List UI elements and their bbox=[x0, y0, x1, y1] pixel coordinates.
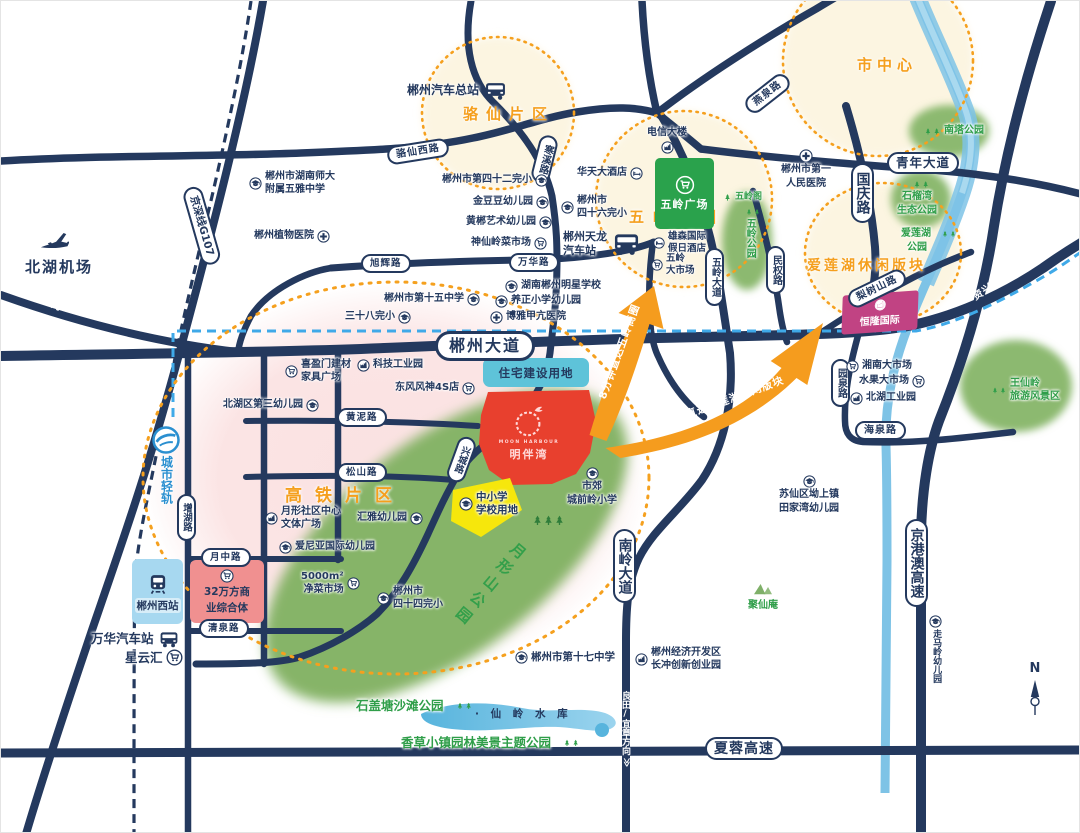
hospital-cross-icon bbox=[799, 149, 813, 163]
no17-label: 郴州市第十七中学 bbox=[531, 651, 615, 664]
poi-no42-school: 郴州市第四十二完小 bbox=[442, 174, 548, 187]
school-icon bbox=[586, 467, 599, 480]
poi-central-bus-station: 郴州汽车总站 bbox=[407, 77, 509, 104]
poi-wulingge: 五岭阁 bbox=[723, 192, 762, 203]
tech-park-label: 科技工业园 bbox=[373, 359, 423, 372]
ailianhu-line2: 公园 bbox=[907, 242, 927, 255]
poi-xiangcao-park: 香草小镇园林美景主题公园 bbox=[401, 735, 580, 751]
poi-fruit-market: 水果大市场 bbox=[859, 375, 925, 388]
commercial-complex-line1: 32万方商 bbox=[204, 584, 250, 599]
mingxing-label: 湖南郴州明星学校 bbox=[521, 280, 601, 293]
poi-beihu-industrial: 北湖工业园 bbox=[850, 392, 916, 405]
mountain-icon bbox=[745, 575, 781, 599]
cart-icon bbox=[285, 365, 298, 378]
factory-icon bbox=[357, 359, 370, 372]
wreath-bird-icon bbox=[510, 405, 548, 439]
factory-icon bbox=[635, 653, 648, 666]
road-label-jinggangao: 京港澳高速 bbox=[905, 519, 928, 607]
suxian-line1: 苏仙区坳上镇 bbox=[779, 489, 839, 502]
light-rail-icon bbox=[151, 425, 181, 455]
trees-icon bbox=[447, 700, 473, 712]
school-icon bbox=[539, 216, 552, 229]
reservoir-drop bbox=[595, 723, 609, 737]
factory-icon bbox=[850, 392, 863, 405]
zoumaling-label: 走马岭幼儿园 bbox=[930, 629, 941, 693]
tianlong-line2: 汽车站 bbox=[563, 244, 607, 258]
poi-no1-hospital: 郴州市第一 人民医院 bbox=[781, 149, 831, 190]
poi-no46-school: 郴州市四十六完小 bbox=[561, 195, 627, 220]
xiongsen-line1: 雄森国际 bbox=[668, 231, 706, 243]
poi-nanta-park: 南塔公园 bbox=[915, 125, 984, 138]
poi-huangchen-art: 黄郴艺术幼儿园 bbox=[466, 216, 552, 229]
yangzheng-label: 养正小学幼儿园 bbox=[511, 295, 581, 308]
beihu-no3-label: 北湖区第三幼儿园 bbox=[223, 399, 303, 412]
jiecai-line1: 5000m² bbox=[301, 571, 344, 584]
poi-reservoir: · 仙 岭 水 库 bbox=[475, 708, 572, 721]
cart-icon bbox=[534, 237, 547, 250]
cart-icon bbox=[651, 259, 663, 271]
poi-no38-school: 三十八完小 bbox=[345, 311, 411, 324]
school-icon bbox=[803, 475, 816, 488]
wuling-plaza-label: 五岭广场 bbox=[661, 196, 709, 212]
trees-icon bbox=[904, 179, 930, 190]
beihu-industrial-label: 北湖工业园 bbox=[866, 392, 916, 405]
xiyingmen-line2: 家具广场 bbox=[301, 372, 351, 385]
commercial-complex-block: 32万方商 业综合体 bbox=[190, 560, 264, 623]
poi-xiyingmen: 喜盈门建材家具广场 bbox=[285, 359, 351, 384]
project-name: 明伴湾 bbox=[510, 446, 549, 462]
fruit-market-label: 水果大市场 bbox=[859, 375, 909, 388]
zone-label-luoxian: 骆仙片区 bbox=[463, 103, 555, 124]
trees-icon bbox=[933, 229, 957, 239]
school-land-line1: 中小学 bbox=[476, 491, 518, 504]
location-map: 骆仙片区 五岭商圈 市中心 爱莲湖休闲版块 高铁片区 五岭广场 住宅建设用地 恒… bbox=[0, 0, 1080, 833]
plane-icon bbox=[25, 227, 83, 257]
chengqianling-line2: 城前岭小学 bbox=[567, 495, 617, 508]
no15-label: 郴州市第十五中学 bbox=[384, 293, 464, 306]
poi-school-land: 中小学学校用地 bbox=[459, 491, 518, 517]
direction-liangtian-yizhang: 良田/宜章方向 bbox=[619, 691, 632, 755]
wuling-market-line2: 大市场 bbox=[666, 265, 695, 277]
school-icon bbox=[398, 311, 411, 324]
compass-needle-icon bbox=[1027, 678, 1043, 718]
compass-north-label: N bbox=[1030, 661, 1041, 677]
shenxianling-label: 神仙岭菜市场 bbox=[471, 237, 531, 250]
poi-shigaitang-park: 石盖塘沙滩公园 bbox=[356, 698, 473, 714]
trees-icon bbox=[983, 385, 1007, 396]
juxian-label: 聚仙庵 bbox=[748, 600, 778, 613]
road-label-wanhua: 万华路 bbox=[509, 253, 559, 272]
no46-line2: 四十六完小 bbox=[577, 208, 627, 221]
bus-icon bbox=[610, 227, 643, 260]
school-icon bbox=[410, 512, 423, 525]
school-icon bbox=[459, 497, 473, 511]
wuling-park-label: 五岭公园 bbox=[743, 218, 756, 270]
road-label-yuezhong: 月中路 bbox=[201, 548, 251, 567]
poi-airport: 北湖机场 bbox=[25, 227, 93, 277]
school-icon bbox=[495, 295, 508, 308]
commercial-complex-line2: 业综合体 bbox=[206, 600, 248, 615]
botanical-label: 郴州植物医院 bbox=[254, 230, 314, 243]
road-label-chenzhou-avenue: 郴州大道 bbox=[435, 331, 535, 361]
poi-shenxianling-market: 神仙岭菜市场 bbox=[471, 237, 547, 250]
cart-icon bbox=[166, 649, 183, 666]
tree-icon bbox=[723, 193, 732, 202]
poi-light-rail: 城市轻轨 bbox=[151, 425, 181, 514]
school-icon bbox=[279, 541, 292, 554]
no44-line1: 郴州市 bbox=[393, 586, 443, 599]
wanhua-bus-label: 万华汽车站 bbox=[91, 631, 154, 647]
poi-huiya-kindergarten: 汇雅幼儿园 bbox=[357, 512, 423, 525]
trees-icon bbox=[737, 207, 761, 217]
poi-econ-zone: 郴州经济开发区长冲创新创业园 bbox=[635, 647, 721, 672]
poi-ailianhu-park: 爱莲湖 公园 bbox=[901, 228, 957, 254]
school-icon bbox=[536, 196, 549, 209]
residential-land-block: 住宅建设用地 bbox=[483, 358, 589, 387]
compass: N bbox=[1027, 661, 1043, 718]
residential-land-label: 住宅建设用地 bbox=[499, 365, 574, 381]
poi-xingyunhui: 星云汇 bbox=[125, 649, 183, 666]
no42-label: 郴州市第四十二完小 bbox=[442, 174, 532, 187]
project-logo: MOON HARBOUR 明伴湾 bbox=[497, 405, 561, 462]
building-icon bbox=[874, 298, 886, 311]
poi-telecom-tower: 电信大楼 bbox=[647, 127, 687, 154]
bus-icon bbox=[482, 77, 509, 104]
road-label-nanling: 南岭大道 bbox=[613, 529, 636, 603]
poi-mingxing-school: 湖南郴州明星学校 bbox=[505, 280, 601, 293]
school-icon bbox=[505, 280, 518, 293]
direction-down-chevron-icon: ≫ bbox=[621, 758, 631, 768]
zone-label-downtown: 市中心 bbox=[857, 54, 917, 75]
no44-line2: 四十四完小 bbox=[393, 599, 443, 612]
poi-juxian-temple: 聚仙庵 bbox=[745, 575, 781, 613]
poi-huatian-hotel: 华天大酒店 bbox=[577, 167, 643, 180]
shiliuwan-line1: 石榴湾 bbox=[902, 191, 932, 204]
poi-jiecai-market: 5000m²净菜市场 bbox=[301, 571, 360, 596]
shigaitang-label: 石盖塘沙滩公园 bbox=[356, 698, 444, 714]
poi-ainiya-kindergarten: 爱尼亚国际幼儿园 bbox=[279, 541, 375, 554]
wuling-market-line1: 五岭 bbox=[666, 253, 695, 265]
yuexing-center-line2: 文体广场 bbox=[281, 519, 341, 532]
cart-icon bbox=[220, 569, 234, 583]
west-station-label: 郴州西站 bbox=[135, 598, 181, 613]
poi-boya-hospital: 博雅甲亢医院 bbox=[490, 311, 566, 324]
hnsd-line1: 郴州市湖南师大 bbox=[265, 171, 335, 184]
poi-hnsd-school: 郴州市湖南师大附属五雅中学 bbox=[249, 171, 335, 196]
wulingge-label: 五岭阁 bbox=[735, 192, 762, 203]
zone-label-ailian: 爱莲湖休闲版块 bbox=[807, 255, 926, 275]
nanta-label: 南塔公园 bbox=[944, 125, 984, 138]
jiecai-line2: 净菜市场 bbox=[304, 584, 344, 597]
poi-wuling-park: 五岭公园 bbox=[737, 207, 761, 270]
road-label-songshan: 松山路 bbox=[337, 463, 387, 482]
cart-icon bbox=[462, 382, 475, 395]
tianlong-line1: 郴州天龙 bbox=[563, 230, 607, 244]
huangchen-art-label: 黄郴艺术幼儿园 bbox=[466, 216, 536, 229]
cart-icon bbox=[675, 175, 695, 195]
poi-beihu-no3-kindergarten: 北湖区第三幼儿园 bbox=[223, 399, 319, 412]
poi-jindoudou: 金豆豆幼儿园 bbox=[473, 196, 549, 209]
poi-xiongsen-hotel: 雄森国际假日酒店 bbox=[653, 231, 706, 255]
school-icon bbox=[561, 201, 574, 214]
chengqianling-line1: 市郊 bbox=[582, 481, 602, 494]
school-icon bbox=[377, 592, 390, 605]
bus-icon bbox=[157, 627, 181, 651]
poi-dongfeng-4s: 东风风神4S店 bbox=[395, 382, 475, 395]
cart-icon bbox=[912, 375, 925, 388]
light-rail-label: 城市轻轨 bbox=[159, 456, 174, 514]
school-icon bbox=[515, 651, 528, 664]
dongfeng-label: 东风风神4S店 bbox=[395, 382, 459, 395]
poi-tianlong-bus-station: 郴州天龙汽车站 bbox=[563, 227, 643, 260]
no1-hospital-line2: 人民医院 bbox=[786, 178, 826, 191]
zone-label-gaotie: 高铁片区 bbox=[285, 481, 405, 506]
poi-no44-school: 郴州市四十四完小 bbox=[377, 586, 443, 611]
hospital-cross-icon bbox=[490, 311, 503, 324]
airport-label: 北湖机场 bbox=[25, 258, 93, 277]
school-icon bbox=[467, 293, 480, 306]
econ-zone-line1: 郴州经济开发区 bbox=[651, 647, 721, 660]
road-label-huangni: 黄泥路 bbox=[337, 408, 387, 427]
hotel-icon bbox=[630, 167, 643, 180]
ailianhu-line1: 爱莲湖 bbox=[901, 228, 931, 241]
road-label-guoqing: 国庆路 bbox=[851, 163, 874, 223]
wuling-plaza-block: 五岭广场 bbox=[655, 158, 714, 229]
reservoir-label: · 仙 岭 水 库 bbox=[475, 708, 572, 721]
xiangnan-label: 湘南大市场 bbox=[862, 360, 912, 373]
xiangcao-label: 香草小镇园林美景主题公园 bbox=[401, 735, 551, 751]
road-label-xuhui: 旭辉路 bbox=[361, 254, 411, 273]
hospital-cross-icon bbox=[317, 230, 330, 243]
road-north-vertical bbox=[642, 1, 657, 113]
shiliuwan-line2: 生态公园 bbox=[897, 205, 937, 218]
ainiya-label: 爱尼亚国际幼儿园 bbox=[295, 541, 375, 554]
poi-botanical-hospital: 郴州植物医院 bbox=[254, 230, 330, 243]
building-icon bbox=[661, 141, 674, 154]
poi-shiliuwan-park: 石榴湾 生态公园 bbox=[897, 179, 937, 217]
school-icon bbox=[929, 615, 942, 628]
poi-zoumaling-kindergarten: 走马岭幼儿园 bbox=[929, 615, 942, 693]
poi-yuexing-center: 月形社区中心文体广场 bbox=[265, 506, 341, 531]
road-label-minquan: 民权路 bbox=[766, 246, 785, 294]
henglong-label: 恒隆国际 bbox=[860, 310, 900, 328]
telecom-label: 电信大楼 bbox=[647, 127, 687, 140]
no1-hospital-line1: 郴州市第一 bbox=[781, 164, 831, 177]
huiya-label: 汇雅幼儿园 bbox=[357, 512, 407, 525]
cart-icon bbox=[846, 360, 859, 373]
project-latin-name: MOON HARBOUR bbox=[499, 440, 560, 445]
suxian-line2: 田家湾幼儿园 bbox=[779, 503, 839, 516]
road-label-xiarong: 夏蓉高速 bbox=[705, 737, 783, 760]
road-label-qingnian: 青年大道 bbox=[887, 152, 959, 174]
huatian-label: 华天大酒店 bbox=[577, 167, 627, 180]
poi-wangxianling: 王仙岭旅游风景区 bbox=[983, 378, 1060, 403]
wangxianling-line2: 旅游风景区 bbox=[1010, 391, 1060, 404]
xiyingmen-line1: 喜盈门建材 bbox=[301, 359, 351, 372]
jindoudou-label: 金豆豆幼儿园 bbox=[473, 196, 533, 209]
poi-xiangnan-market: 湘南大市场 bbox=[846, 360, 912, 373]
poi-no17-school: 郴州市第十七中学 bbox=[515, 651, 615, 664]
school-icon bbox=[306, 399, 319, 412]
trees-icon bbox=[554, 737, 580, 749]
wangxianling-line1: 王仙岭 bbox=[1010, 378, 1060, 391]
poi-tech-park: 科技工业园 bbox=[357, 359, 423, 372]
road-label-haiquan: 海泉路 bbox=[855, 421, 906, 440]
building-icon bbox=[265, 512, 278, 525]
boya-label: 博雅甲亢医院 bbox=[506, 311, 566, 324]
yuexing-center-line1: 月形社区中心 bbox=[281, 506, 341, 519]
hotel-icon bbox=[653, 237, 665, 249]
poi-no15-school: 郴州市第十五中学 bbox=[384, 293, 480, 306]
poi-wanhua-bus-station: 万华汽车站 bbox=[91, 627, 181, 651]
road-label-qingquan: 清泉路 bbox=[199, 619, 249, 638]
econ-zone-line2: 长冲创新创业园 bbox=[651, 660, 721, 673]
school-icon bbox=[249, 177, 262, 190]
poi-chengqianling-school: 市郊 城前岭小学 bbox=[567, 467, 617, 507]
school-land-line2: 学校用地 bbox=[476, 504, 518, 517]
poi-suxian-kindergarten: 苏仙区坳上镇 田家湾幼儿园 bbox=[779, 475, 839, 515]
trees-icon bbox=[915, 126, 941, 137]
hnsd-line2: 附属五雅中学 bbox=[265, 184, 335, 197]
road-label-wuling-avenue: 五岭大道 bbox=[705, 248, 724, 306]
west-station-block: 郴州西站 bbox=[132, 559, 183, 624]
poi-wuling-market: 五岭大市场 bbox=[651, 253, 695, 277]
cart-icon bbox=[347, 577, 360, 590]
poi-yangzheng-kindergarten: 养正小学幼儿园 bbox=[495, 295, 581, 308]
train-icon bbox=[145, 571, 171, 597]
school-icon bbox=[535, 174, 548, 187]
central-bus-label: 郴州汽车总站 bbox=[407, 83, 479, 98]
no38-label: 三十八完小 bbox=[345, 311, 395, 324]
no46-line1: 郴州市 bbox=[577, 195, 627, 208]
xingyunhui-label: 星云汇 bbox=[125, 650, 163, 666]
